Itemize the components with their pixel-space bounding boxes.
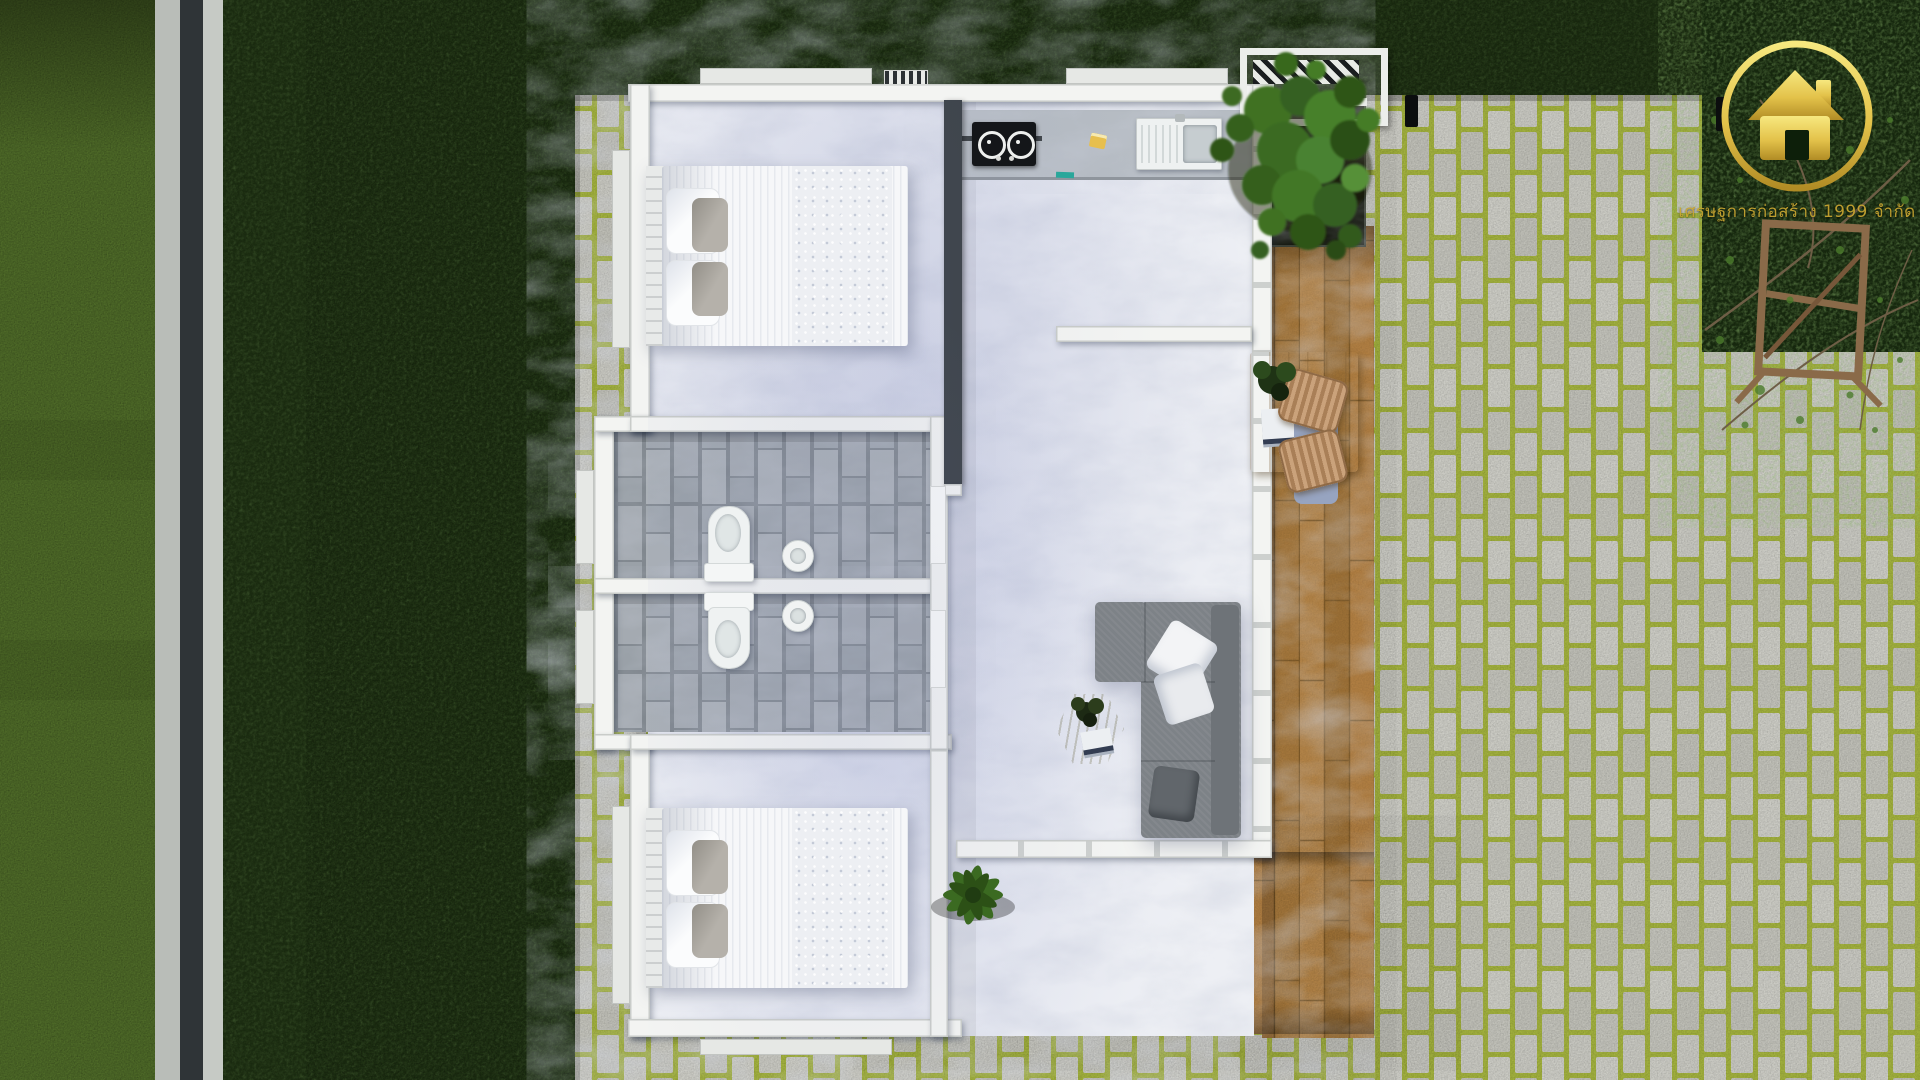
plant-coffee-table [1071, 697, 1104, 727]
gold-house-circle-logo-icon [1682, 30, 1912, 192]
brand-watermark: เศรษฐการก่อสร้าง 1999 จำกัด [1672, 30, 1920, 225]
plant-deck-table [1253, 361, 1296, 401]
watermark-text: เศรษฐการก่อสร้าง 1999 จำกัด [1672, 198, 1920, 225]
climbing-plant [1210, 52, 1380, 260]
logo-door-notch [1785, 130, 1809, 160]
plants-overlay [0, 0, 1920, 1080]
potted-plant-deck [931, 864, 1015, 926]
scene-3d-floorplan-render: เศรษฐการก่อสร้าง 1999 จำกัด [0, 0, 1920, 1080]
